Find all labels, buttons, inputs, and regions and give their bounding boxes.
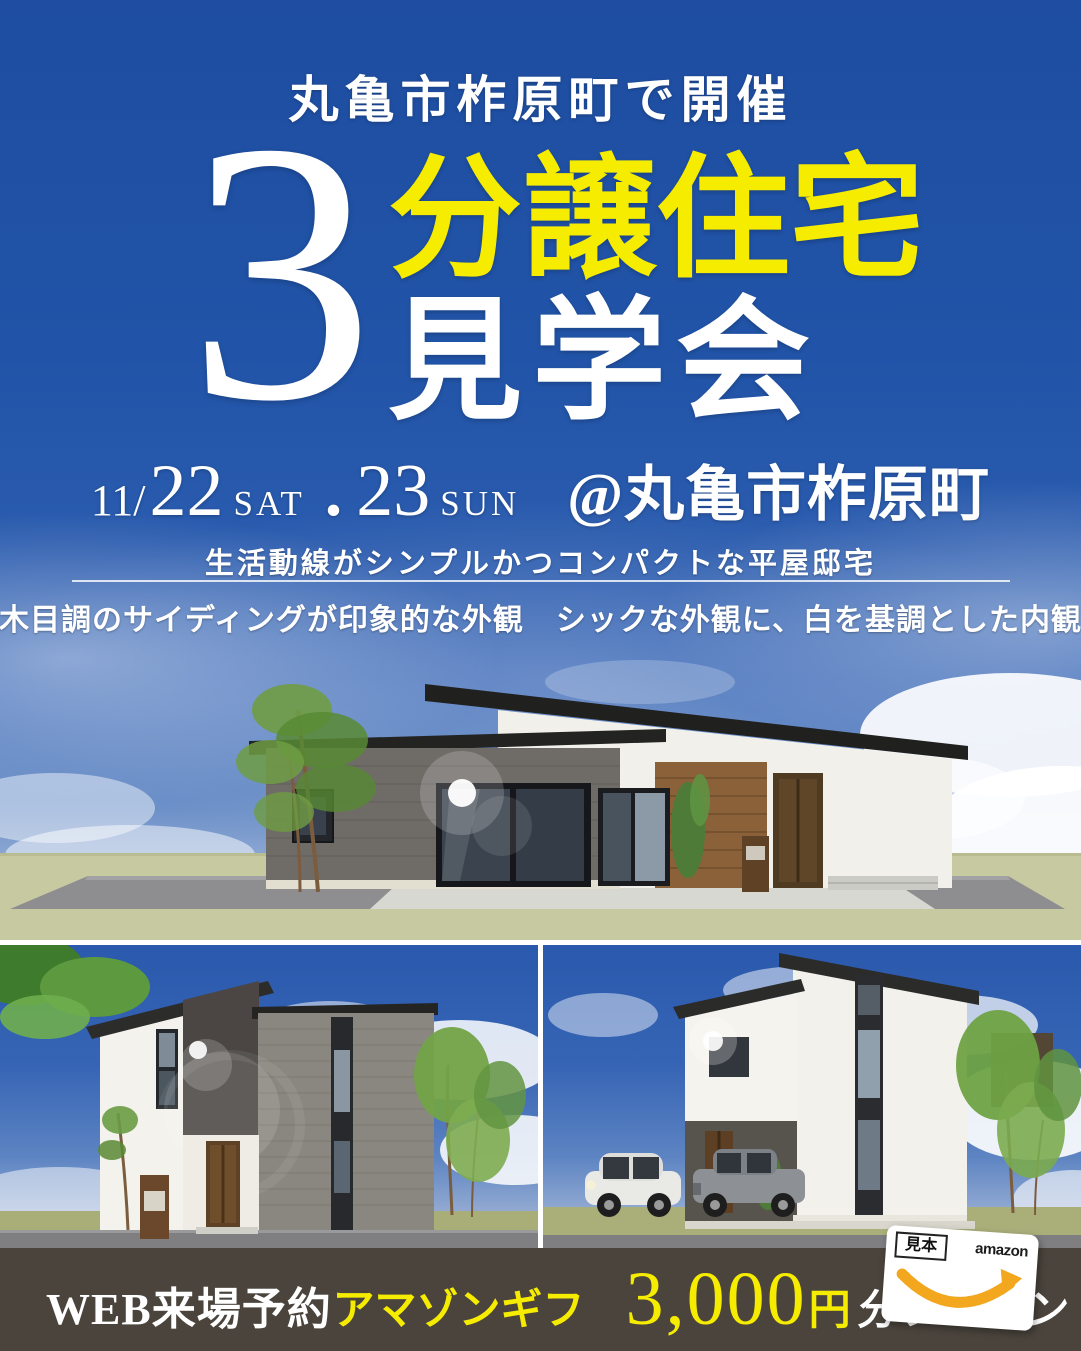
- date-day2: 23: [356, 449, 430, 534]
- amazon-smile-icon: [889, 1259, 1029, 1326]
- date-dow2: SUN: [440, 484, 519, 524]
- title-bunjo-jutaku: 分譲住宅: [388, 150, 924, 290]
- date-separator: .: [325, 453, 343, 533]
- feature-line: 木目調のサイディングが印象的な外観 シックな外観に、白を基調とした内観: [0, 595, 1081, 639]
- footer-gift-amount: 3,000: [626, 1248, 807, 1351]
- footer-gift-name: アマゾンギフト券: [332, 1260, 623, 1351]
- title-kengakukai: 見学会: [388, 292, 820, 432]
- hero-section: 丸亀市柞原町で開催 3 分譲住宅 見学会 11/ 22 SAT . 23 SUN…: [0, 0, 1081, 940]
- feature-right-text: シックな外観に、白を基調とした内観: [556, 595, 1081, 639]
- house-photo-right: [543, 945, 1081, 1248]
- catch-copy: 生活動線がシンプルかつコンパクトな平屋邸宅: [0, 540, 1081, 582]
- event-date-row: 11/ 22 SAT . 23 SUN @丸亀市柞原町: [0, 446, 1081, 534]
- house-count: 3: [188, 108, 368, 438]
- date-day1: 22: [150, 449, 224, 534]
- flyer: 丸亀市柞原町で開催 3 分譲住宅 見学会 11/ 22 SAT . 23 SUN…: [0, 0, 1081, 1351]
- house-photo-left: [0, 945, 538, 1248]
- sample-badge: 見本: [894, 1231, 948, 1261]
- event-location: 丸亀市柞原町で開催: [0, 60, 1081, 132]
- event-place: @丸亀市柞原町: [567, 446, 990, 533]
- footer-lead-text: WEB来場予約で: [46, 1258, 332, 1351]
- feature-left-text: 木目調のサイディングが印象的な外観: [0, 595, 524, 639]
- divider-line: [72, 580, 1010, 582]
- date-dow1: SAT: [234, 484, 305, 524]
- date-month: 11/: [91, 475, 146, 526]
- main-house-photo: [0, 640, 1081, 940]
- footer-gift-unit: 円: [809, 1260, 851, 1351]
- amazon-logo: amazon: [975, 1240, 1029, 1261]
- amazon-gift-card: 見本 amazon: [881, 1225, 1039, 1331]
